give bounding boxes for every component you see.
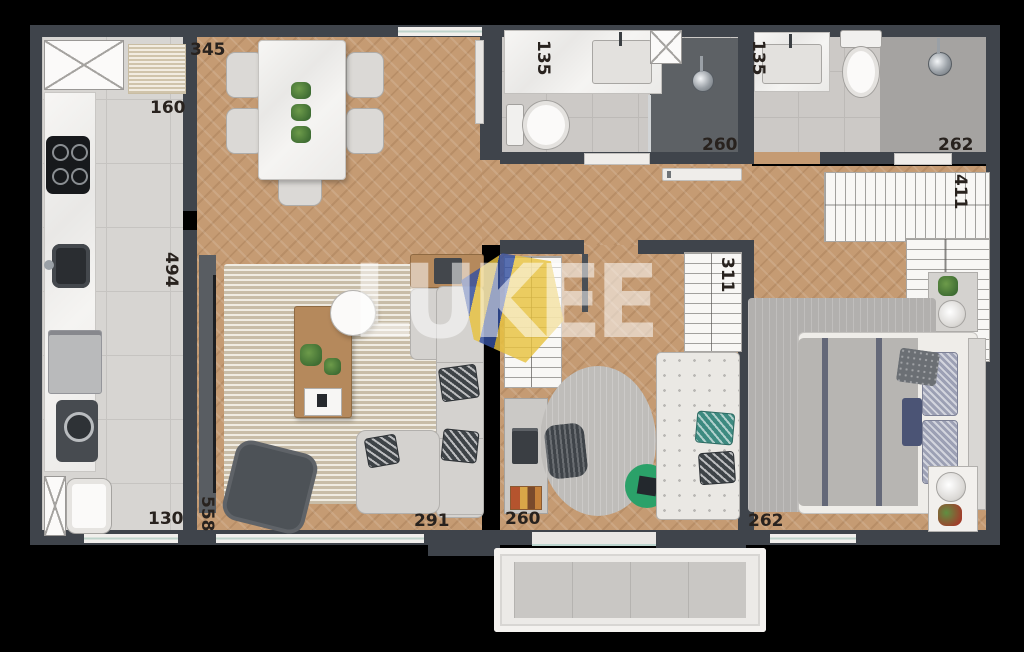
nightstand-lamp-icon [938, 300, 966, 328]
bath1-basin [592, 40, 652, 84]
dim-label-bath2-width: 135 [749, 40, 766, 76]
bath2-faucet-icon [789, 34, 792, 48]
service-cabinet-icon [44, 476, 66, 536]
table-plant-icon [291, 126, 311, 143]
cooktop-burner [52, 168, 69, 185]
tray-art-icon [317, 394, 327, 407]
wall-left [30, 25, 42, 545]
dim-label-dining-top: 345 [190, 42, 226, 59]
chaise-pillow [364, 433, 401, 468]
bath2-toilet-bowl [842, 46, 880, 98]
window-living [216, 534, 424, 543]
dining-pocket-door [475, 40, 484, 124]
bath1-glass-partition [648, 95, 651, 152]
table-plant-icon [291, 104, 311, 121]
entry-sliding-door [662, 168, 742, 181]
dim-label-kitchen-pass: 160 [150, 100, 186, 117]
kitchen-faucet-icon [44, 260, 54, 270]
nightstand2-lamp-icon [936, 472, 966, 502]
dim-label-wardrobe-length: 311 [718, 257, 735, 293]
sofa-pillow [438, 364, 480, 403]
bath1-sliding-door [584, 153, 650, 165]
bath1-toilet-bowl [522, 100, 570, 150]
dim-label-living-length: 558 [198, 496, 215, 532]
dim-label-bath1-width: 135 [534, 40, 551, 76]
window-service [84, 534, 178, 543]
floor-plan-canvas: 345 160 494 130 558 291 135 260 135 262 … [0, 0, 1024, 652]
bed-cushion-navy [902, 398, 922, 446]
entry-cabinet-icon [650, 30, 682, 64]
bath1-shower-head-icon [692, 70, 714, 92]
dim-label-closet-length: 411 [951, 174, 968, 210]
dining-chair [346, 52, 384, 98]
bath2-basin [762, 44, 822, 84]
bath2-shower-arm [937, 38, 940, 54]
tv-icon [213, 275, 216, 493]
laundry-sink [66, 478, 112, 534]
entry-door-handle [667, 171, 671, 178]
nightstand-plant-icon [938, 276, 958, 296]
laptop-icon [512, 428, 538, 464]
window-bedroom [770, 534, 856, 543]
bedroom-corridor-opening [754, 152, 820, 164]
bath2-shower-head-icon [928, 52, 952, 76]
balcony-threshold [532, 532, 656, 546]
kitchen-mat [128, 44, 186, 94]
daybed-pillow [695, 410, 736, 445]
washer-door-icon [64, 412, 94, 442]
table-plant-icon [291, 82, 311, 99]
coffee-table-plant-icon [324, 358, 341, 375]
desk-poster [510, 486, 542, 510]
nightstand2-plant-icon [938, 504, 962, 526]
cooktop-burner [52, 144, 69, 161]
coffee-table-plant-icon [300, 344, 322, 366]
dim-label-bath1-length: 260 [702, 137, 738, 154]
kitchen-sink [52, 244, 90, 288]
dim-label-service-width: 130 [148, 511, 184, 528]
dim-label-office-width: 260 [505, 511, 541, 528]
wall-kitchen-tv [183, 230, 197, 532]
dim-label-bedroom-width: 262 [748, 513, 784, 530]
daybed-pillow [698, 451, 736, 485]
window-top-dining [398, 27, 482, 36]
sofa-pillow [440, 428, 479, 464]
dim-label-bath2-length: 262 [938, 137, 974, 154]
kitchen-cabinet-icon [44, 40, 124, 90]
oven-appliance [48, 330, 102, 394]
dim-label-living-width: 291 [414, 513, 450, 530]
bath1-faucet-icon [619, 32, 622, 46]
cooktop-burner [71, 144, 88, 161]
balcony-floor [514, 562, 746, 618]
bathroom2-shower-floor [880, 28, 988, 152]
dining-chair [346, 108, 384, 154]
cooktop-burner [71, 168, 88, 185]
watermark: LUKEE [352, 252, 653, 354]
balcony-stub-left [428, 530, 500, 556]
bath1-shower-arm [700, 56, 703, 72]
desk-chair [543, 422, 588, 480]
dim-label-kitchen-length: 494 [162, 252, 179, 288]
bed-cushion-gray [896, 347, 940, 386]
